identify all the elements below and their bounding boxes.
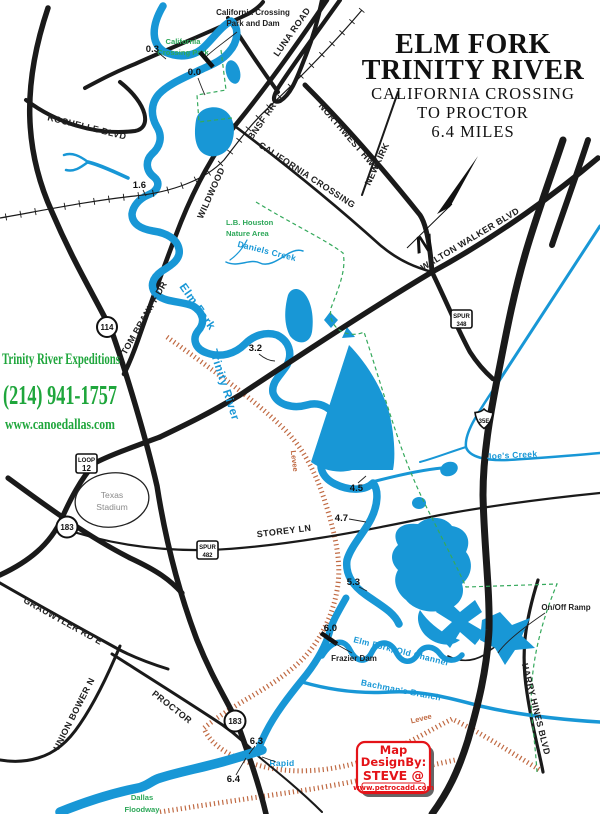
label-frazier-dam: Frazier Dam — [331, 654, 377, 663]
label-levee-left: Levee — [289, 450, 301, 472]
advertiser-phone: (214) 941-1757 — [3, 380, 117, 410]
pond-park-small — [223, 59, 243, 86]
label-union-bower: UNION BOWER N — [51, 676, 96, 752]
label-floodway-1: Dallas — [131, 793, 153, 802]
label-lb-houston-1: L.B. Houston — [226, 218, 274, 227]
title-line-5: 6.4 MILES — [431, 122, 514, 141]
credit-line-4: www.petrocadd.com — [353, 784, 434, 792]
title-line-4: TO PROCTOR — [417, 103, 529, 122]
mile-0-3: 0.3 — [146, 44, 159, 55]
leader-0-0 — [198, 78, 205, 95]
tributary-west-fork2 — [66, 162, 88, 171]
label-wildwood: WILDWOOD — [195, 166, 227, 221]
pond-east-2 — [412, 497, 426, 509]
leader-4-7 — [349, 519, 366, 522]
shield-183-upper-text: 183 — [60, 523, 74, 532]
shield-114-text: 114 — [101, 323, 114, 332]
title-line-3: CALIFORNIA CROSSING — [371, 84, 575, 103]
shield-loop12-num: 12 — [82, 464, 91, 473]
label-stadium-2: Stadium — [96, 502, 128, 512]
shield-spur348-num: 348 — [456, 322, 467, 328]
road-i35e — [432, 140, 563, 814]
label-park-dam-1: California Crossing — [216, 8, 290, 17]
label-park-dam-2: Park and Dam — [226, 19, 279, 28]
credit-line-3: STEVE @ — [363, 768, 424, 783]
river-outflow — [258, 598, 346, 753]
title-block: ELM FORK TRINITY RIVER CALIFORNIA CROSSI… — [362, 29, 585, 141]
lake-bottom-large — [392, 518, 471, 612]
label-levee-bottom: Levee — [410, 712, 433, 726]
mile-6-0: 6.0 — [324, 623, 337, 634]
shield-spur348-word: SPUR — [453, 314, 470, 320]
leader-4-5 — [358, 476, 366, 483]
north-arrow-needle — [437, 156, 478, 214]
joes-creek-trib — [420, 447, 466, 462]
credit-line-2: DesignBy: — [361, 755, 426, 769]
label-rochelle: ROCHELLE BLVD — [46, 112, 127, 141]
label-walton-walker: WALTON WALKER BLVD — [419, 206, 521, 273]
label-lb-houston-2: Nature Area — [226, 229, 270, 238]
pond-east-1 — [438, 459, 460, 478]
tributary-west — [88, 162, 128, 178]
mile-6-4: 6.4 — [227, 774, 241, 785]
credit-box: Map DesignBy: STEVE @ www.petrocadd.com — [353, 742, 434, 797]
shield-spur482-word: SPUR — [199, 545, 216, 551]
label-stadium-1: Texas — [101, 490, 123, 500]
mile-4-7: 4.7 — [335, 513, 348, 524]
label-daniels-creek: Daniels Creek — [237, 239, 298, 263]
label-rapid: Rapid — [269, 758, 294, 768]
label-floodway-2: Floodway — [124, 805, 160, 814]
mile-4-5: 4.5 — [350, 483, 364, 494]
label-elm-fork: Elm Fork — [177, 281, 218, 332]
label-tom-braniff: TOM BRANIFF DR — [119, 280, 169, 357]
tributary-west-fork1 — [64, 154, 88, 162]
leader-3-2 — [259, 354, 275, 361]
shield-spur482-num: 482 — [202, 553, 213, 559]
mile-0-0: 0.0 — [188, 67, 201, 78]
advertiser-name: Trinity River Expeditions — [2, 351, 120, 368]
mile-5-3: 5.3 — [347, 577, 360, 588]
mile-3-2: 3.2 — [249, 343, 262, 354]
mile-1-6: 1.6 — [133, 180, 146, 191]
pond-channel-east — [372, 468, 442, 482]
label-storey: STOREY LN — [256, 523, 312, 540]
pond-mid-tall — [285, 289, 313, 342]
shield-i35e-text: 35E — [479, 419, 490, 425]
mile-6-3: 6.3 — [250, 736, 263, 747]
north-arrow-n: N — [412, 229, 436, 260]
pond-park-large — [195, 107, 234, 156]
advertiser-website: www.canoedallas.com — [5, 417, 115, 433]
title-line-2: TRINITY RIVER — [362, 55, 585, 86]
advertiser-block: Trinity River Expeditions (214) 941-1757… — [2, 351, 120, 433]
label-bachmans: Bachman's Branch — [360, 677, 442, 702]
bachmans-branch — [302, 682, 600, 722]
label-onoff-ramp: On/Off Ramp — [541, 603, 590, 612]
shield-183-lower-text: 183 — [228, 717, 242, 726]
river-map: ROCHELLE BLVD LUNA ROAD BNSF RR NORTHWES… — [0, 0, 600, 814]
label-park-1: California — [165, 37, 201, 46]
label-california-crossing: CALIFORNIA CROSSING — [257, 140, 357, 210]
label-proctor: PROCTOR — [150, 688, 194, 725]
label-grauwyler: GRAUWYLER RD E — [22, 595, 104, 647]
